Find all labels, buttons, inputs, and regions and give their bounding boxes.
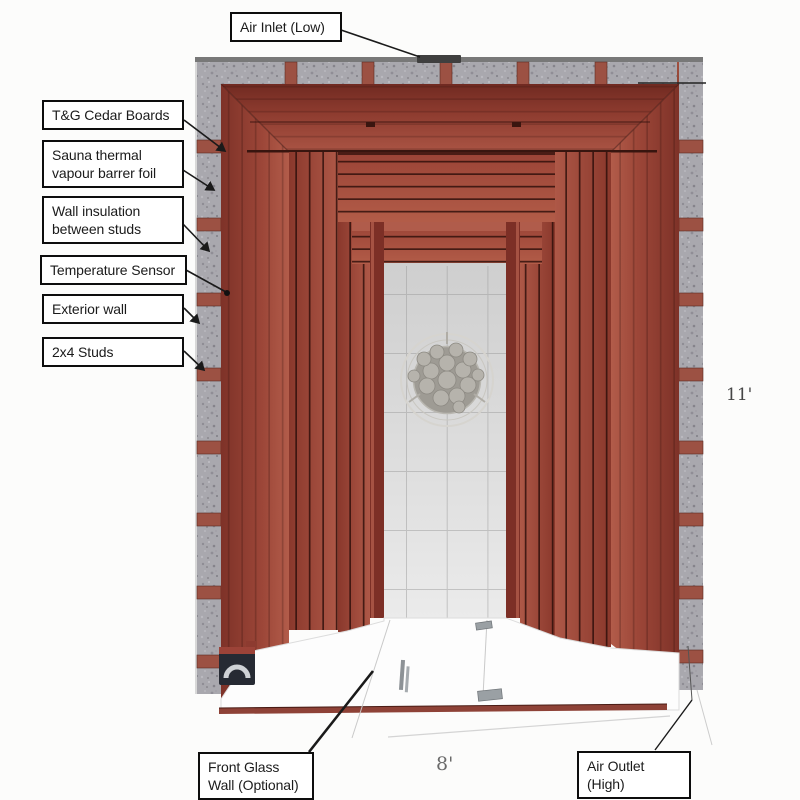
sauna-heater xyxy=(401,332,493,426)
callout-air-outlet: Air Outlet (High) xyxy=(577,751,691,799)
door-hinge-bottom xyxy=(478,689,503,701)
callout-vapour-barrier: Sauna thermal vapour barrer foil xyxy=(42,140,184,188)
left-wall-section xyxy=(195,62,221,694)
right-wall-section xyxy=(679,62,703,690)
callout-air-inlet: Air Inlet (Low) xyxy=(230,12,342,42)
sauna-construction-diagram: Air Inlet (Low) T&G Cedar Boards Sauna t… xyxy=(0,0,800,800)
callout-wall-insulation: Wall insulation between studs xyxy=(42,196,184,244)
back-wall-panel xyxy=(338,152,555,222)
dimension-depth: 11' xyxy=(726,385,752,405)
callout-studs: 2x4 Studs xyxy=(42,337,184,367)
callout-front-glass-wall: Front Glass Wall (Optional) xyxy=(198,752,314,800)
air-inlet-vent xyxy=(417,55,461,63)
callout-cedar-boards: T&G Cedar Boards xyxy=(42,100,184,130)
leader-air-inlet xyxy=(341,30,420,57)
temperature-sensor-dot xyxy=(224,290,230,296)
top-wall-section xyxy=(195,55,703,89)
corner-drain-fixture xyxy=(219,641,256,685)
callout-temperature-sensor: Temperature Sensor xyxy=(40,255,187,285)
dimension-width: 8' xyxy=(436,753,453,775)
tiled-floor xyxy=(384,263,506,618)
callout-exterior-wall: Exterior wall xyxy=(42,294,184,324)
